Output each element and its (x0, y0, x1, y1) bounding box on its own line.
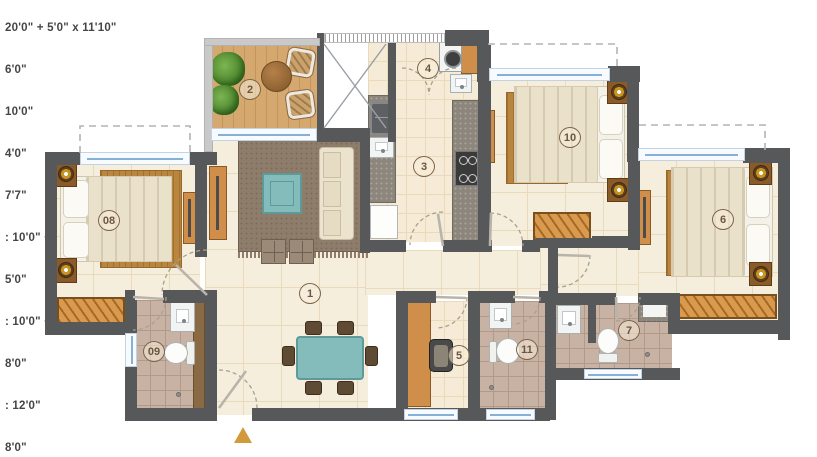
nightstand (749, 262, 772, 286)
washbasin (489, 302, 512, 329)
floor-drain (645, 352, 650, 357)
sofa-cushion (323, 181, 341, 207)
wall (360, 128, 370, 253)
room-number-bath-left: 09 (143, 341, 165, 362)
room-number-living: 1 (299, 283, 321, 304)
wall (628, 150, 640, 250)
wardrobe (533, 212, 591, 241)
room-number-bedroom-top: 10 (559, 127, 581, 148)
lamp-icon (58, 262, 74, 278)
desk (406, 302, 431, 407)
wall (556, 293, 616, 305)
vent-grill (324, 33, 445, 43)
blanket (514, 86, 598, 183)
wall (195, 152, 207, 257)
wall (668, 320, 790, 334)
nightstand (607, 178, 630, 202)
toilet-bowl (164, 342, 188, 364)
dining-chair (337, 381, 354, 395)
wall (388, 33, 396, 142)
wall (317, 33, 324, 142)
room-number-bedroom-right: 6 (712, 209, 734, 230)
wall (443, 240, 492, 252)
wall (588, 295, 596, 343)
dining-chair (365, 346, 378, 366)
room-number-utility-bath: 4 (417, 58, 439, 79)
washbasin (450, 74, 472, 93)
wall (778, 148, 790, 340)
wall (45, 322, 133, 335)
window (404, 409, 458, 420)
wall (548, 246, 558, 300)
toilet-bowl (597, 328, 619, 354)
appliance (370, 205, 398, 239)
dining-chair (305, 321, 322, 335)
lamp-icon (611, 84, 627, 100)
sofa (319, 147, 354, 240)
console-unit (209, 166, 227, 240)
lamp-icon (611, 182, 627, 198)
wall (396, 291, 408, 420)
toilet (598, 353, 618, 363)
wall (638, 293, 670, 305)
coffee-table (262, 173, 302, 214)
washbasin (557, 305, 581, 334)
legend-line: 6'0" (5, 63, 182, 77)
dining-table (296, 336, 364, 380)
wall (545, 293, 556, 420)
wardrobe (676, 294, 777, 319)
floorplan-page: 20'0" + 5'0" x 11'10" 6'0" 10'0" 4'0" 7'… (0, 0, 817, 457)
room-number-kitchen: 3 (413, 156, 435, 177)
entry-arrow-icon (234, 427, 252, 443)
nightstand (749, 161, 772, 185)
balcony-chair (285, 89, 315, 119)
wardrobe (57, 297, 125, 324)
wall (536, 238, 594, 248)
round-table (261, 61, 292, 92)
window (584, 369, 642, 379)
wall (592, 236, 640, 248)
nightstand (55, 258, 77, 283)
room-number-bath-right: 7 (618, 320, 640, 341)
lamp-icon (58, 166, 74, 182)
sofa-cushion (323, 152, 341, 178)
sofa-cushion (323, 210, 341, 236)
window (80, 152, 190, 165)
counter-panel (643, 303, 666, 317)
lamp-icon (753, 266, 769, 282)
window (489, 68, 610, 81)
room-number-bedroom-left: 08 (98, 210, 120, 231)
plant-icon (209, 85, 239, 115)
gas-stove (455, 151, 478, 186)
dining-chair (337, 321, 354, 335)
floor-drain (176, 392, 181, 397)
nightstand (55, 162, 77, 187)
dining-chair (282, 346, 295, 366)
plant-icon (211, 52, 245, 86)
room-number-balcony: 2 (239, 79, 261, 100)
pillow (63, 222, 89, 258)
wall (45, 152, 57, 335)
floor-drain (489, 385, 494, 390)
ottoman (261, 239, 286, 264)
tv-unit (639, 190, 651, 245)
legend-line: 20'0" + 5'0" x 11'10" (5, 21, 182, 35)
room-number-study: 5 (448, 345, 470, 366)
pillow (746, 224, 770, 266)
wall (45, 152, 83, 165)
window (486, 409, 535, 420)
table-inlay (270, 181, 294, 206)
room-number-bath-middle: 11 (516, 339, 538, 360)
pillow (599, 139, 623, 179)
legend-line: 10'0" (5, 105, 182, 119)
washing-machine (439, 42, 462, 72)
chair-seat (434, 345, 448, 367)
wall (125, 408, 217, 421)
sliding-window (211, 128, 317, 141)
window (125, 333, 137, 367)
washbasin (170, 302, 195, 332)
wall (205, 290, 217, 421)
legend-line: 8'0" (5, 441, 182, 455)
ottoman (289, 239, 314, 264)
dining-chair (305, 381, 322, 395)
lamp-icon (753, 165, 769, 181)
wall (360, 240, 406, 252)
blanket (671, 167, 745, 277)
balcony-railing (204, 38, 320, 46)
window (638, 148, 745, 161)
corridor-floor (365, 250, 550, 295)
